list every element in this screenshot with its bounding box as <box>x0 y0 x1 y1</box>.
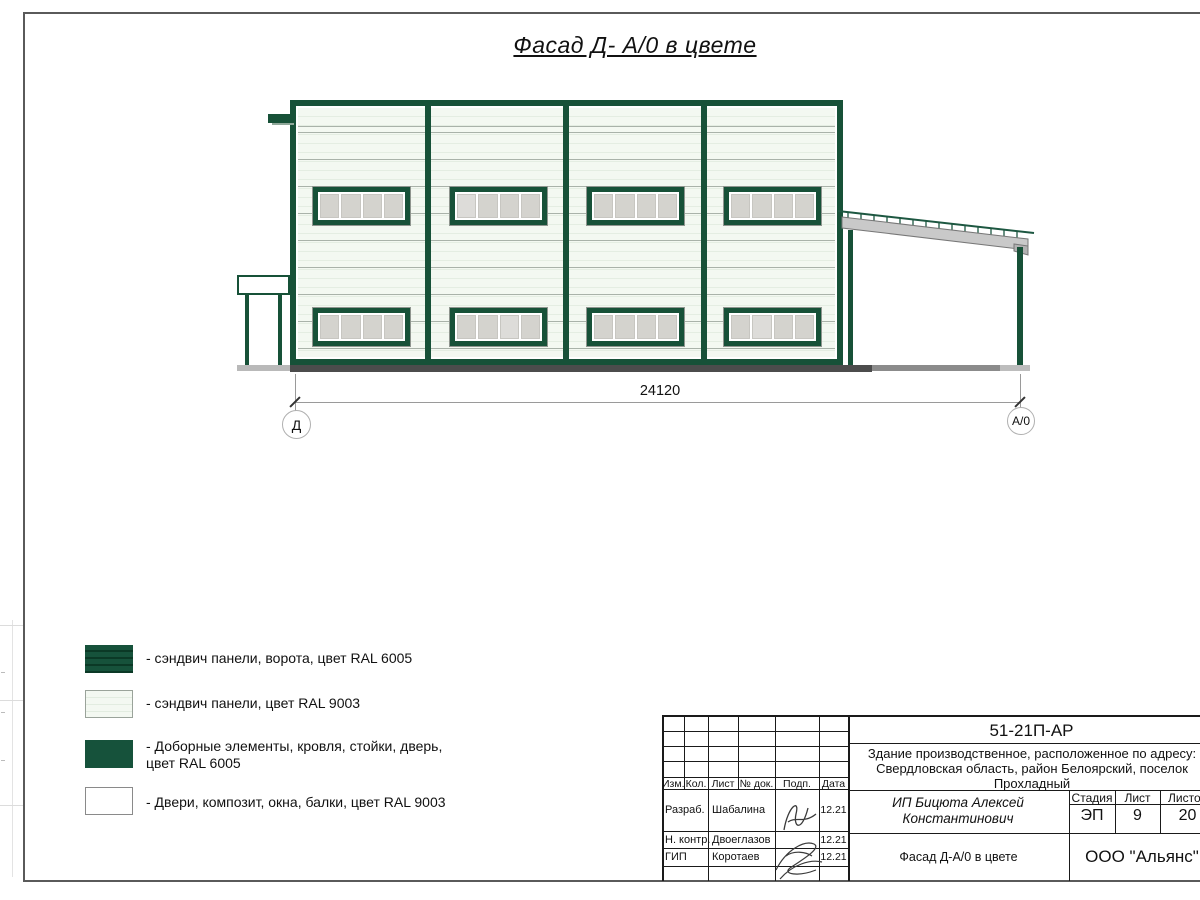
legend-swatch-ral9003-white <box>85 787 133 815</box>
doc-number: 51-21П-АР <box>848 721 1200 741</box>
dimension-label: 24120 <box>600 383 720 399</box>
window-pane <box>637 315 656 339</box>
rev-header-data: Дата <box>819 778 848 790</box>
sheet-header: Лист <box>1115 792 1160 804</box>
ground-strip <box>237 365 290 371</box>
ground-strip <box>290 365 872 372</box>
window-4 <box>724 187 821 225</box>
sheet-value: 9 <box>1115 810 1160 822</box>
page-title: Фасад Д- А/0 в цвете <box>400 32 870 59</box>
titleblock-line <box>662 715 664 881</box>
window-pane <box>731 315 750 339</box>
window-pane <box>320 315 339 339</box>
window-pane <box>615 315 634 339</box>
margin-line <box>0 805 23 806</box>
window-pane <box>594 194 613 218</box>
window-pane <box>500 194 519 218</box>
margin-line <box>12 620 13 877</box>
axis-label: Д <box>292 417 301 433</box>
margin-tick <box>1 672 5 673</box>
legend-label: - Доборные элементы, кровля, стойки, две… <box>146 738 442 755</box>
window-pane <box>363 315 382 339</box>
rev-header-izm: Изм. <box>662 778 684 790</box>
window-pane <box>752 194 771 218</box>
project-description-line: Здание производственное, расположенное п… <box>852 746 1200 761</box>
signature-shabalina <box>778 794 820 836</box>
window-pane <box>521 194 540 218</box>
legend-label: цвет RAL 6005 <box>146 755 241 772</box>
entrance-canopy <box>237 275 290 295</box>
window-7 <box>587 308 684 346</box>
window-pane <box>478 315 497 339</box>
window-5 <box>313 308 410 346</box>
window-3 <box>587 187 684 225</box>
legend-label: - сэндвич панели, ворота, цвет RAL 6005 <box>146 650 412 667</box>
window-pane <box>457 315 476 339</box>
titleblock-line <box>662 715 1200 717</box>
signer-role: ГИП <box>665 851 687 863</box>
window-pane <box>795 194 814 218</box>
signer-role: Н. контр. <box>665 834 710 846</box>
margin-line <box>0 625 23 626</box>
signer-name: Шабалина <box>712 804 765 816</box>
titleblock-line <box>662 761 849 762</box>
window-pane <box>615 194 634 218</box>
rev-header-podp: Подп. <box>775 778 819 790</box>
window-pane <box>731 194 750 218</box>
rev-header-doc: № док. <box>738 778 775 790</box>
legend-label: - Двери, композит, окна, балки, цвет RAL… <box>146 794 446 811</box>
margin-tick <box>1 760 5 761</box>
window-8 <box>724 308 821 346</box>
top-left-canopy <box>268 114 296 123</box>
rev-header-list: Лист <box>708 778 738 790</box>
sheet-title: Фасад Д-А/0 в цвете <box>848 833 1069 881</box>
sheets-value: 20 <box>1160 810 1200 822</box>
window-pane <box>594 315 613 339</box>
signer-name: Двоеглазов <box>712 834 770 846</box>
ground-strip <box>872 365 1000 371</box>
axis-bubble-left: Д <box>282 410 311 439</box>
window-pane <box>478 194 497 218</box>
stage-header: Стадия <box>1069 792 1115 804</box>
rev-header-kol: Кол. <box>684 778 708 790</box>
titleblock-line <box>662 746 849 747</box>
window-2 <box>450 187 547 225</box>
window-pane <box>384 315 403 339</box>
signer-name: Коротаев <box>712 851 760 863</box>
entrance-post <box>278 295 282 365</box>
window-1 <box>313 187 410 225</box>
entrance-post <box>245 295 249 365</box>
sheet-frame-top <box>23 12 1200 14</box>
window-pane <box>500 315 519 339</box>
titleblock-line <box>848 743 1200 744</box>
stage-value: ЭП <box>1069 810 1115 822</box>
legend-label: - сэндвич панели, цвет RAL 9003 <box>146 695 360 712</box>
titleblock-line <box>662 731 849 732</box>
margin-line <box>0 700 23 701</box>
window-pane <box>637 194 656 218</box>
facade-mullion <box>425 103 431 365</box>
window-pane <box>774 315 793 339</box>
window-pane <box>521 315 540 339</box>
signer-role: Разраб. <box>665 804 705 816</box>
legend-swatch-ral6005-solid <box>85 740 133 768</box>
window-pane <box>658 315 677 339</box>
window-pane <box>795 315 814 339</box>
signature-kontroler <box>772 832 826 884</box>
window-pane <box>363 194 382 218</box>
lean-to-post-left <box>848 230 853 365</box>
window-6 <box>450 308 547 346</box>
margin-tick <box>1 712 5 713</box>
organization-name: ООО "Альянс" <box>1069 833 1200 881</box>
client-name: ИП Бицюта Алексей Константинович <box>868 795 1048 827</box>
legend-swatch-ral6005-gate <box>85 645 133 673</box>
project-description-line: Прохладный <box>852 776 1200 791</box>
window-pane <box>341 315 360 339</box>
top-left-canopy-edge <box>272 123 294 125</box>
facade-mullion <box>701 103 707 365</box>
window-pane <box>320 194 339 218</box>
dimension-line <box>295 402 1021 403</box>
facade-mullion <box>563 103 569 365</box>
window-pane <box>457 194 476 218</box>
signer-date: 12.21 <box>819 804 848 816</box>
window-pane <box>774 194 793 218</box>
window-pane <box>384 194 403 218</box>
axis-label: А/0 <box>1012 414 1030 428</box>
window-pane <box>658 194 677 218</box>
sheet-frame-left <box>23 12 25 882</box>
window-pane <box>341 194 360 218</box>
lean-to-roof <box>836 203 1036 257</box>
lean-to-post-right <box>1017 247 1023 365</box>
window-pane <box>752 315 771 339</box>
ground-strip <box>1000 365 1030 371</box>
titleblock-line <box>708 715 709 881</box>
sheets-header: Листов <box>1160 792 1200 804</box>
legend-swatch-ral9003-panel <box>85 690 133 718</box>
project-description-line: Свердловская область, район Белоярский, … <box>852 761 1200 776</box>
extension-line-left <box>295 374 296 411</box>
axis-bubble-right: А/0 <box>1007 407 1035 435</box>
